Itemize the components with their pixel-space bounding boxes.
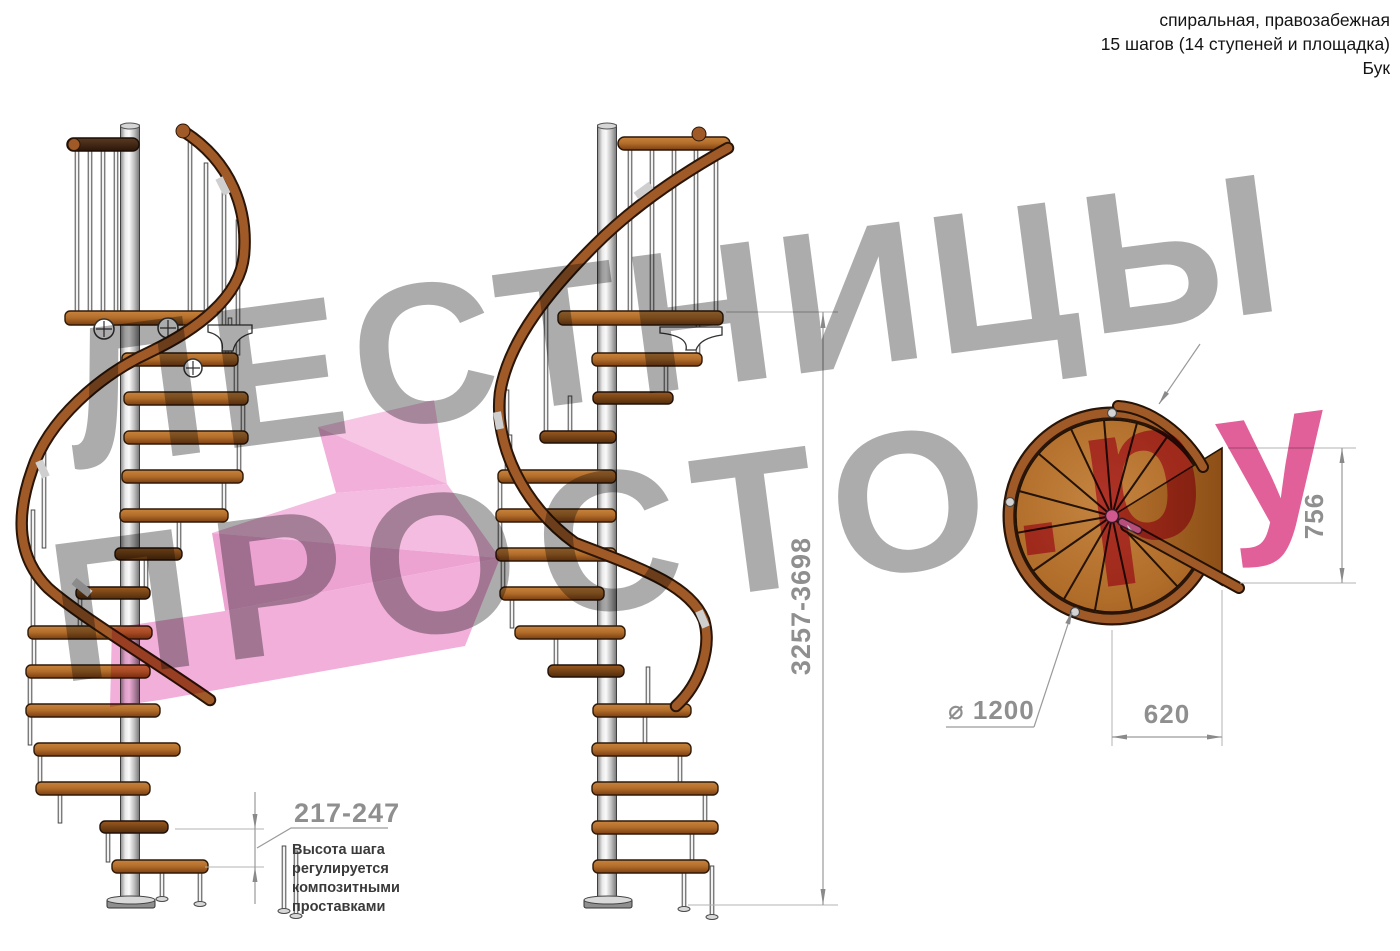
step-note-line3: композитными	[292, 880, 400, 896]
plan-width-value: 620	[1144, 699, 1190, 729]
tread	[112, 860, 208, 873]
pole-cap	[121, 123, 140, 129]
handrail-cap	[176, 124, 190, 138]
tread	[592, 821, 718, 834]
drawing-sheet: 3257-3698 217-247 Высота шага регулирует…	[0, 0, 1400, 951]
pole-cap	[598, 123, 617, 129]
step-height-value: 217-247	[294, 798, 400, 828]
landing-rail	[618, 137, 730, 150]
watermark-line2-pink: .ру	[991, 333, 1363, 599]
pole-base-top	[107, 896, 155, 904]
tread	[593, 860, 709, 873]
step-note-line2: регулируется	[292, 861, 389, 877]
handrail-knob	[692, 127, 706, 141]
spec-material: Бук	[1101, 56, 1390, 80]
tread	[592, 782, 718, 795]
step-note-line1: Высота шага	[292, 842, 386, 858]
dim-plan-diameter: ⌀ 1200	[946, 611, 1072, 727]
tread	[100, 821, 168, 833]
spec-steps: 15 шагов (14 ступеней и площадка)	[1101, 32, 1390, 56]
tread	[592, 743, 691, 756]
step-note-line4: проставками	[292, 899, 385, 915]
dim-step-height: 217-247 Высота шага регулируется компози…	[175, 792, 400, 915]
rail-end-cap	[68, 139, 80, 151]
tread	[36, 782, 150, 795]
pole-base-top	[584, 896, 632, 904]
spec-header: спиральная, правозабежная 15 шагов (14 с…	[1101, 8, 1390, 80]
spec-type: спиральная, правозабежная	[1101, 8, 1390, 32]
tread	[548, 665, 624, 677]
plan-diameter-value: ⌀ 1200	[948, 695, 1035, 725]
tread	[34, 743, 180, 756]
